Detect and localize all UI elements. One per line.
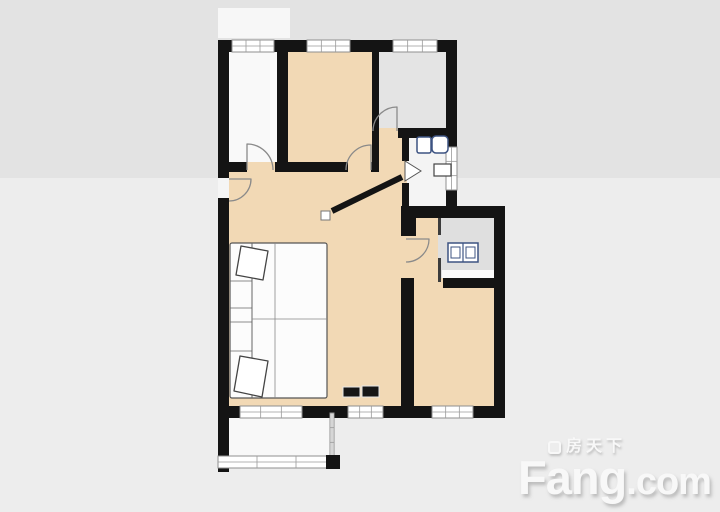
- bathroom-sink-right: [432, 136, 448, 153]
- balcony-side-rail: [330, 413, 334, 457]
- room-bedroom-left: [222, 44, 284, 170]
- bathroom-sink-left: [417, 137, 431, 153]
- wall-kitchen-partition-upper: [438, 218, 441, 235]
- pillow-bottom: [234, 356, 268, 397]
- fang-logo-wordmark-main: Fang: [518, 451, 626, 504]
- window-top-right: [393, 40, 437, 52]
- wall-leftroom-bottom-east: [275, 162, 288, 172]
- doorway-entrance: [218, 178, 229, 198]
- tv-console-left: [343, 387, 360, 397]
- wall-bedroom-left-upper: [401, 206, 416, 236]
- wall-bathroom-left-upper: [402, 137, 409, 161]
- wall-bedroom-top-east: [443, 278, 505, 288]
- balcony-corner-post: [326, 455, 340, 469]
- room-bedroom-right: [376, 44, 452, 134]
- doorway-right-bedroom: [379, 128, 398, 138]
- pillow-top: [236, 246, 268, 280]
- wall-left-upper: [218, 40, 229, 178]
- wall-mid-east: [403, 206, 505, 218]
- window-living-right: [348, 406, 383, 418]
- window-living-left: [240, 406, 302, 418]
- wall-divider-left-middle: [277, 40, 288, 172]
- fang-logo-wordmark-suffix: .com: [626, 461, 711, 503]
- window-bedroom-bottom: [432, 406, 473, 418]
- room-bedroom-middle: [282, 44, 378, 170]
- doorway-middle-bedroom: [348, 162, 371, 172]
- window-top-middle: [307, 40, 350, 52]
- bathroom-toilet: [434, 164, 451, 176]
- background-highlight-patch: [218, 8, 290, 38]
- floorplan-svg: [0, 0, 720, 512]
- balcony-front-rail: [218, 456, 335, 468]
- doorway-left-bedroom: [247, 162, 275, 172]
- room-bedroom-bottom: [406, 284, 498, 412]
- screenshot-root: 房天下 Fang.com: [0, 0, 720, 512]
- fang-logo-wordmark: Fang.com: [518, 456, 711, 504]
- wall-bedroom-top-west: [406, 278, 413, 288]
- wall-bathroom-left-lower: [402, 183, 409, 208]
- wall-diagonal-endcap: [321, 211, 330, 220]
- window-top-left: [232, 40, 274, 52]
- wall-leftroom-bottom-west: [224, 162, 247, 172]
- wall-kitchen-partition-lower: [438, 258, 441, 282]
- wall-midroom-bottom: [288, 162, 348, 172]
- wall-midroom-bottom-stub: [371, 162, 379, 172]
- tv-console-right: [362, 386, 379, 397]
- fang-logo: 房天下 Fang.com: [518, 438, 711, 504]
- wall-divider-middle-right: [372, 40, 379, 172]
- wall-right-lower: [494, 206, 505, 418]
- wall-left-lower: [218, 198, 229, 472]
- wall-bedroom-left-lower: [401, 278, 414, 418]
